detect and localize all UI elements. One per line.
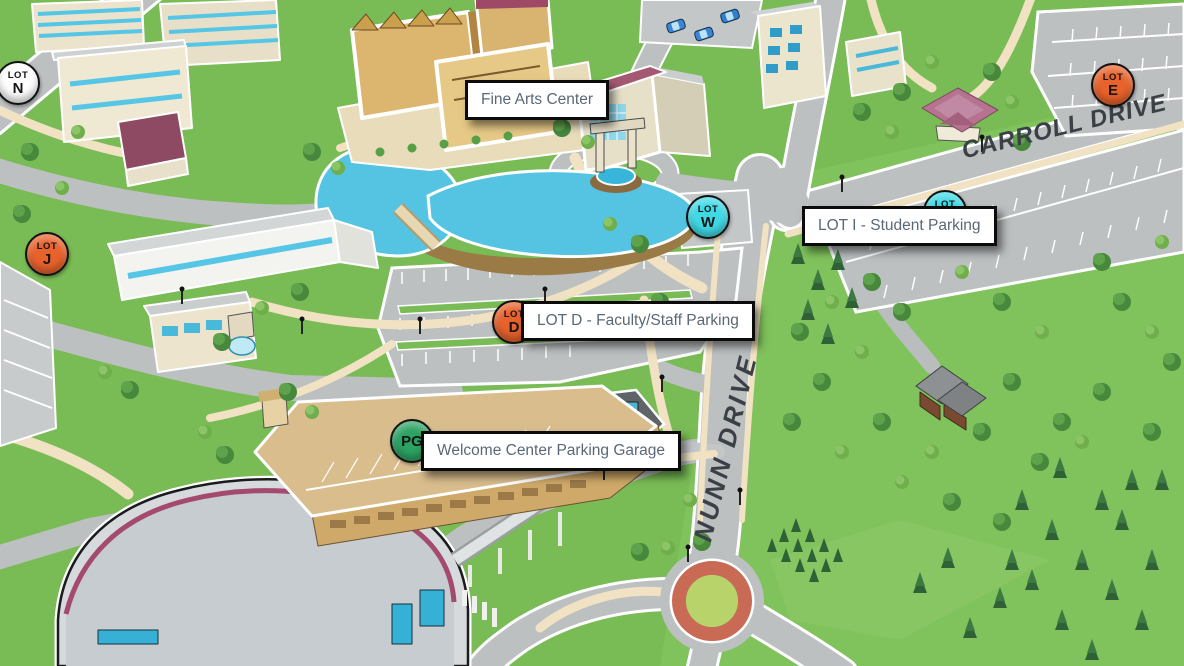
label-lot-d-faculty-staff-parking[interactable]: LOT D - Faculty/Staff Parking xyxy=(521,301,755,341)
label-welcome-center-parking-garage[interactable]: Welcome Center Parking Garage xyxy=(421,431,681,471)
building-lab-dome xyxy=(144,292,256,372)
marker-lot-w-main: W xyxy=(701,215,715,230)
roundabout xyxy=(660,549,764,653)
marker-lot-j-main: J xyxy=(43,252,51,267)
marker-lot-j-top: LOT xyxy=(37,242,58,252)
marker-lot-d-main: D xyxy=(509,320,520,335)
marker-lot-e-main: E xyxy=(1108,83,1118,98)
label-lot-i-student-parking[interactable]: LOT I - Student Parking xyxy=(802,206,997,246)
label-fine-arts-center[interactable]: Fine Arts Center xyxy=(465,80,609,120)
marker-lot-e[interactable]: LOT E xyxy=(1091,63,1135,107)
marker-lot-n-top: LOT xyxy=(8,71,29,81)
marker-lot-w[interactable]: LOT W xyxy=(686,195,730,239)
marker-lot-n-main: N xyxy=(13,81,24,96)
building-left-parking-deck xyxy=(0,262,56,446)
marker-lot-w-top: LOT xyxy=(698,205,719,215)
marker-lot-e-top: LOT xyxy=(1103,73,1124,83)
parking-pad-top xyxy=(640,0,762,48)
campus-map: NUNN DRIVE CARROLL DRIVE LOT N LOT J LOT… xyxy=(0,0,1184,666)
marker-parking-garage-main: PG xyxy=(401,434,423,449)
marker-lot-j[interactable]: LOT J xyxy=(25,232,69,276)
